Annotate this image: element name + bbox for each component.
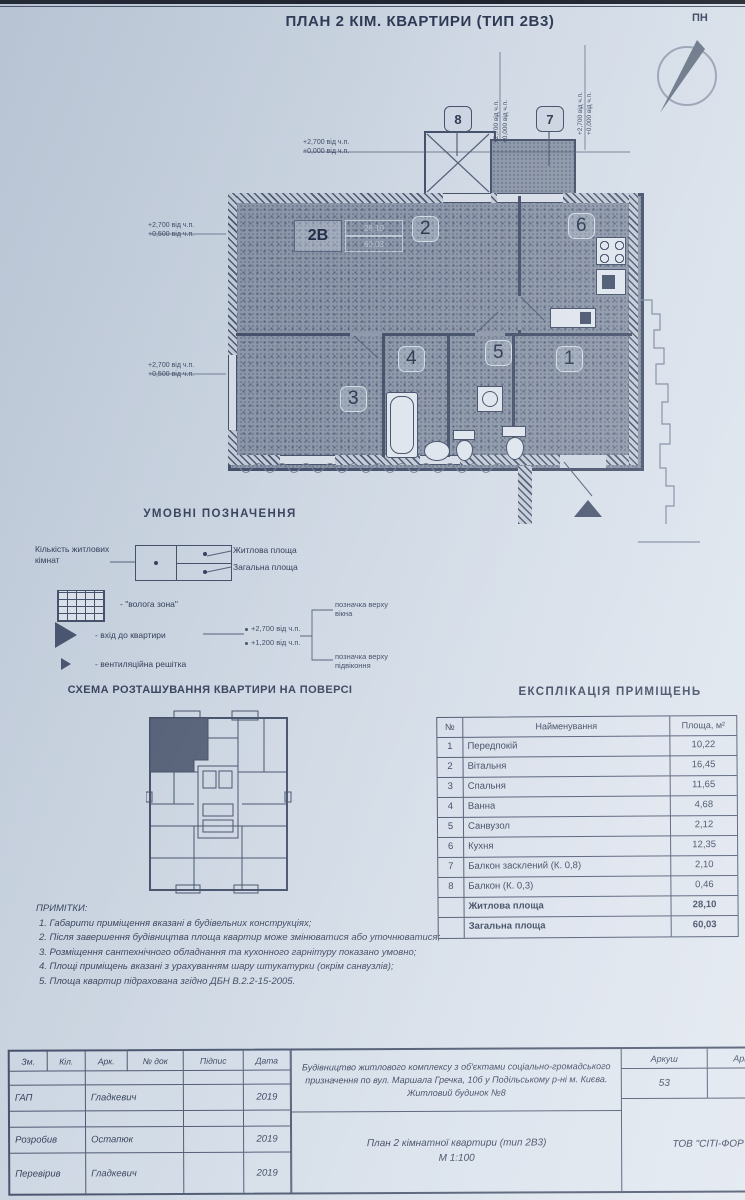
- legend-title: УМОВНІ ПОЗНАЧЕННЯ: [60, 508, 380, 520]
- date-cell: [244, 1110, 291, 1126]
- name-cell: Гладкевич: [86, 1153, 184, 1193]
- table-row: 1Передпокій10,22: [437, 736, 736, 758]
- date-cell: [244, 1070, 291, 1084]
- table-header-row: № Найменування Площа, м²: [437, 716, 736, 738]
- cell-area: 11,65: [671, 776, 737, 796]
- toilet: [502, 426, 526, 437]
- table-total-row: Житлова площа28,10: [438, 896, 737, 918]
- drawing-title: План 2 кімнатної квартири (тип 2В3): [367, 1135, 547, 1151]
- north-label: ПН: [692, 12, 708, 24]
- washing-machine: [477, 386, 503, 412]
- table-row: 4Ванна4,68: [438, 796, 737, 818]
- elevation-line: +0,500 від ч.п.: [148, 370, 194, 379]
- apartment-type-tag: 2В 28,10 60,03: [294, 220, 403, 252]
- col-header: Кіл.: [48, 1051, 86, 1071]
- col-header: № док: [128, 1051, 184, 1071]
- elevation-mark: +2,700 від ч.п. +0,500 від ч.п.: [148, 361, 194, 379]
- explication-table: № Найменування Площа, м² 1Передпокій10,2…: [436, 715, 739, 939]
- table-row: 3Спальня11,65: [438, 776, 737, 798]
- cell-name: Балкон (К. 0,3): [464, 876, 671, 897]
- toilet: [453, 430, 475, 440]
- page-title: ПЛАН 2 КІМ. КВАРТИРИ (ТИП 2В3): [200, 13, 640, 30]
- cell-name: Санвузол: [464, 816, 671, 837]
- wall: [382, 336, 385, 457]
- elevation-line: +0,500 від ч.п.: [148, 230, 194, 239]
- cell-name: Спальня: [464, 776, 671, 797]
- window: [497, 193, 563, 203]
- cell-area: 60,03: [672, 916, 738, 936]
- entrance-arrow-icon: [574, 500, 602, 517]
- table-row: 8Балкон (К. 0,3)0,46: [438, 876, 737, 898]
- cell-area: 28,10: [671, 896, 737, 916]
- entrance-icon: [55, 622, 77, 648]
- cell-name: Загальна площа: [465, 916, 672, 937]
- balcony-open: [424, 131, 496, 199]
- role-cell: [10, 1071, 86, 1085]
- notes-title: ПРИМІТКИ:: [36, 902, 448, 916]
- room-number: 5: [485, 340, 512, 366]
- window-top-mark-label: позначка верху вікна: [335, 600, 405, 618]
- cell-name: Ванна: [464, 796, 671, 817]
- cell-no: 6: [438, 838, 464, 858]
- sink: [424, 441, 450, 461]
- equipment-box: [550, 308, 596, 328]
- cell-no: 7: [438, 858, 464, 878]
- bathtub: [386, 392, 418, 458]
- schema-title: СХЕМА РОЗТАШУВАННЯ КВАРТИРИ НА ПОВЕРСІ: [40, 684, 380, 696]
- cell-area: 2,12: [671, 816, 737, 836]
- cell-no: 2: [438, 758, 464, 778]
- elevation-line: +0,000 від ч.п.: [303, 147, 349, 156]
- company-name: ТОВ "СІТІ-ФОР: [622, 1098, 745, 1189]
- floor-location-schema: [146, 708, 296, 903]
- signature-row: [10, 1110, 291, 1127]
- scan-edge: [0, 0, 745, 4]
- vent-grille-icon: [61, 658, 71, 670]
- cell-area: 12,35: [671, 836, 737, 856]
- cell-no: 5: [438, 818, 464, 838]
- role-cell: Розробив: [10, 1127, 86, 1153]
- door-opening: [475, 333, 505, 336]
- sheet-number: 53: [622, 1069, 708, 1098]
- door-opening: [350, 333, 382, 336]
- wet-zone-label: - "волога зона": [120, 599, 178, 609]
- signature-row: [10, 1070, 291, 1085]
- room-number: 3: [340, 386, 367, 412]
- col-header: Арк.: [86, 1051, 128, 1071]
- balcony-7-tag: 7: [536, 106, 564, 132]
- scan-edge-line: [0, 6, 745, 7]
- compass-icon: [658, 40, 716, 113]
- sheet-label: Аркуш: [622, 1049, 708, 1069]
- signature-row: ГАП Гладкевич 2019: [10, 1084, 291, 1111]
- date-cell: 2019: [244, 1152, 291, 1192]
- drawing-sheet: ПЛАН 2 КІМ. КВАРТИРИ (ТИП 2В3) ПН 8 7 2В…: [0, 0, 745, 1200]
- cell-name: Передпокій: [463, 736, 670, 757]
- room-number: 6: [568, 213, 595, 239]
- signature-row: Перевірив Гладкевич 2019: [10, 1152, 291, 1193]
- window: [228, 355, 237, 430]
- sheet-section: Аркуш Аркушів 53 ТОВ "СІТІ-ФОР: [622, 1048, 745, 1191]
- table-row: 5Санвузол2,12: [438, 816, 737, 838]
- revision-table: Зм. Кіл. Арк. № док Підпис Дата ГАП Глад…: [10, 1050, 293, 1193]
- cell-name: Вітальня: [464, 756, 671, 777]
- note-item: 3. Розміщення сантехнічного обладнання т…: [36, 946, 448, 960]
- col-header: Зм.: [10, 1052, 48, 1072]
- explication-title: ЕКСПЛІКАЦІЯ ПРИМІЩЕНЬ: [470, 686, 745, 698]
- elevation-mark: +2,700 від ч.п. +0,000 від ч.п.: [492, 38, 510, 143]
- table-total-row: Загальна площа60,03: [439, 916, 738, 938]
- date-cell: 2019: [244, 1084, 291, 1110]
- cell-area: 10,22: [670, 736, 736, 756]
- sample-elevation-bottom: +1,200 від ч.п.: [245, 638, 300, 647]
- signature-row: Розробив Остапюк 2019: [10, 1126, 291, 1153]
- project-section: Будівництво житлового комплексу з об'єкт…: [292, 1049, 623, 1192]
- role-cell: ГАП: [10, 1085, 86, 1111]
- date-cell: 2019: [244, 1126, 291, 1152]
- wall: [447, 336, 450, 457]
- drawing-scale: М 1:100: [439, 1151, 475, 1166]
- note-item: 5. Площа квартир підрахована згідно ДБН …: [36, 975, 448, 989]
- elevation-mark: +2,700 від ч.п. +0,000 від ч.п.: [576, 30, 594, 135]
- entrance-opening: [560, 455, 606, 468]
- area-tag-symbol: [135, 545, 232, 581]
- cell-no: 3: [438, 778, 464, 798]
- door-opening: [518, 296, 521, 330]
- cell-area: 0,46: [671, 876, 737, 896]
- window: [443, 193, 491, 203]
- name-cell: Гладкевич: [86, 1085, 184, 1111]
- stove: [596, 237, 626, 265]
- elevation-line: +2,700 від ч.п.: [303, 138, 349, 147]
- note-item: 2. Після завершення будівництва площа кв…: [36, 931, 448, 945]
- sample-elevation-top: +2,700 від ч.п.: [245, 624, 300, 633]
- revision-header-row: Зм. Кіл. Арк. № док Підпис Дата: [10, 1050, 291, 1071]
- cell-no: 1: [437, 738, 463, 758]
- signature-cell: [184, 1085, 244, 1111]
- role-cell: [10, 1111, 86, 1127]
- note-item: 4. Площі приміщень вказані з урахуванням…: [36, 960, 448, 974]
- total-area-label: Загальна площа: [233, 562, 298, 572]
- elevation-line: +2,700 від ч.п.: [148, 361, 194, 370]
- vent-grille-label: - вентиляційна решітка: [95, 659, 186, 669]
- entrance-label: - вхід до квартири: [95, 630, 166, 640]
- col-header: Дата: [244, 1050, 291, 1070]
- sill-top-mark-label: позначка верху підвіконня: [335, 652, 405, 670]
- name-cell: Остапюк: [86, 1127, 184, 1153]
- wet-zone-icon: [57, 590, 105, 622]
- cell-name: Балкон засклений (К. 0,8): [464, 856, 671, 877]
- name-cell: [86, 1071, 184, 1085]
- title-block: Зм. Кіл. Арк. № док Підпис Дата ГАП Глад…: [8, 1046, 745, 1195]
- elevation-mark: +2,700 від ч.п. +0,500 від ч.п.: [148, 221, 194, 239]
- cell-area: 16,45: [671, 756, 737, 776]
- role-cell: Перевірив: [10, 1153, 86, 1193]
- elevation-line: +2,700 від ч.п.: [576, 30, 585, 135]
- apartment-type-label: 2В: [294, 220, 342, 252]
- elevation-mark: +2,700 від ч.п. +0,000 від ч.п.: [303, 138, 349, 156]
- note-item: 1. Габарити приміщення вказані в будівел…: [36, 917, 448, 931]
- signature-cell: [184, 1071, 244, 1085]
- wall: [629, 193, 638, 465]
- notes-block: ПРИМІТКИ: 1. Габарити приміщення вказані…: [36, 902, 448, 988]
- signature-cell: [184, 1127, 244, 1153]
- window: [280, 455, 335, 465]
- cell-no: 4: [438, 798, 464, 818]
- balcony-glazed: [490, 139, 576, 201]
- elevation-line: +0,000 від ч.п.: [501, 38, 510, 143]
- table-row: 7Балкон засклений (К. 0,8)2,10: [438, 856, 737, 878]
- signature-cell: [184, 1153, 244, 1193]
- name-cell: [86, 1111, 184, 1127]
- cell-name: Житлова площа: [464, 896, 671, 917]
- wall: [236, 333, 632, 336]
- rooms-count-label: Кількість житлових кімнат: [35, 544, 135, 566]
- room-number: 2: [412, 216, 439, 242]
- total-area-value-faint: 60,03: [345, 236, 403, 252]
- table-row: 6Кухня12,35: [438, 836, 737, 858]
- cell-no: 8: [438, 878, 464, 898]
- col-header-name: Найменування: [463, 716, 670, 737]
- signature-cell: [184, 1111, 244, 1127]
- sheets-number: [708, 1068, 745, 1097]
- elevation-line: +0,000 від ч.п.: [585, 30, 594, 135]
- kitchen-sink: [596, 269, 626, 295]
- elevation-line: +2,700 від ч.п.: [492, 38, 501, 143]
- elevation-line: +2,700 від ч.п.: [148, 221, 194, 230]
- balcony-8-tag: 8: [444, 106, 472, 132]
- col-header-area: Площа, м²: [670, 716, 736, 736]
- col-header: Підпис: [184, 1051, 244, 1071]
- room-number: 1: [556, 346, 583, 372]
- table-row: 2Вітальня16,45: [438, 756, 737, 778]
- cell-name: Кухня: [464, 836, 671, 857]
- cell-area: 4,68: [671, 796, 737, 816]
- wall: [228, 193, 638, 203]
- wall: [518, 466, 532, 524]
- sheets-label: Аркушів: [708, 1048, 745, 1068]
- project-description: Будівництво житлового комплексу з об'єкт…: [292, 1049, 621, 1112]
- cell-area: 2,10: [671, 856, 737, 876]
- col-header-no: №: [437, 718, 463, 738]
- room-number: 4: [398, 346, 425, 372]
- living-area-label: Житлова площа: [233, 545, 297, 555]
- living-area-value-faint: 28,10: [345, 220, 403, 236]
